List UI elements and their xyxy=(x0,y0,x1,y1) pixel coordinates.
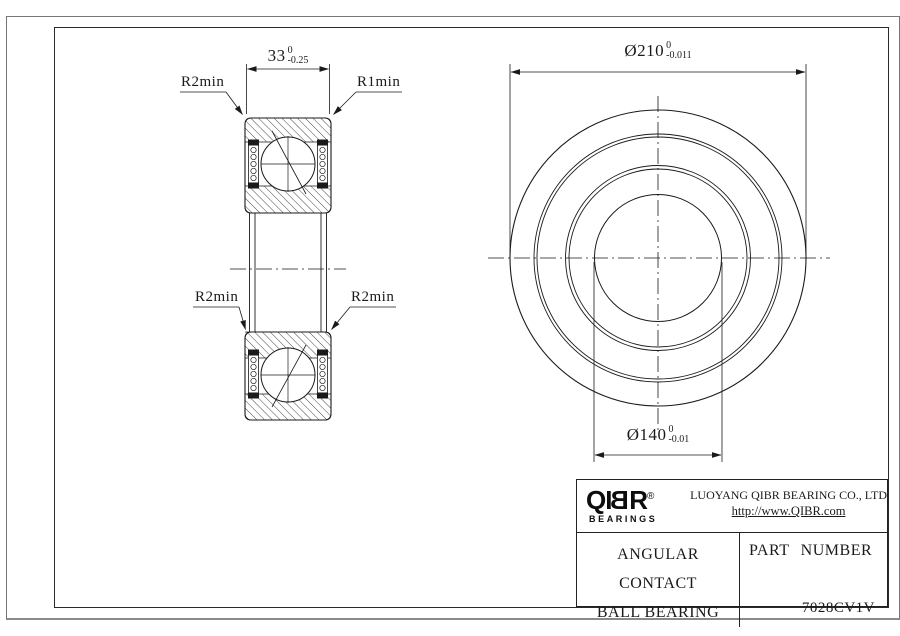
width-dim-tolerance: 0-0.25 xyxy=(288,46,309,66)
part-number-value: 7028CV1V xyxy=(802,600,875,617)
bore-dia-value: Ø140 xyxy=(627,425,667,445)
cage-strip-bottom-right xyxy=(318,350,328,398)
label-r2min-bottom-right: R2min xyxy=(351,289,394,306)
bore-face-lines xyxy=(250,213,327,332)
product-line1: ANGULAR CONTACT xyxy=(577,540,739,598)
logo-wordmark: QIBR® xyxy=(586,484,690,513)
width-dimension-lines xyxy=(247,64,330,114)
product-description: ANGULAR CONTACT BALL BEARING xyxy=(577,533,740,627)
width-dim-value: 33 xyxy=(268,46,286,66)
front-view xyxy=(488,64,830,462)
logo-mirrored-b: B xyxy=(611,487,629,513)
company-info: LUOYANG QIBR BEARING CO., LTD http://www… xyxy=(690,480,887,532)
outer-dia-dimension-text: Ø2100-0.011 xyxy=(558,40,758,61)
section-view xyxy=(180,64,402,420)
section-bottom-half xyxy=(245,332,331,420)
bore-dia-tolerance: 0-0.01 xyxy=(668,425,689,445)
title-block-detail-row: ANGULAR CONTACT BALL BEARING PART NUMBER… xyxy=(577,533,887,627)
product-line2: BALL BEARING xyxy=(577,598,739,627)
company-website-link[interactable]: http://www.QIBR.com xyxy=(690,503,887,519)
outer-dia-value: Ø210 xyxy=(624,41,664,61)
part-number-label: PART NUMBER xyxy=(749,542,872,560)
label-r2min-top-left: R2min xyxy=(181,74,224,91)
part-number-cell: PART NUMBER 7028CV1V xyxy=(740,533,887,627)
label-r1min-top-right: R1min xyxy=(357,74,400,91)
engineering-drawing-sheet: { "drawing": { "section_view": { "width_… xyxy=(0,0,900,636)
section-top-half xyxy=(245,118,331,213)
outer-dia-tolerance: 0-0.011 xyxy=(666,41,691,61)
label-r2min-bottom-left: R2min xyxy=(195,289,238,306)
cage-strip-bottom-left xyxy=(249,350,259,398)
cage-strip-top-right xyxy=(318,140,328,188)
cage-strip-top-left xyxy=(249,140,259,188)
bore-dia-dimension-text: Ø1400-0.01 xyxy=(558,424,758,445)
logo-subtext: BEARINGS xyxy=(589,514,690,524)
company-name: LUOYANG QIBR BEARING CO., LTD xyxy=(690,487,887,503)
registered-trademark-icon: ® xyxy=(647,491,654,502)
title-block: QIBR® BEARINGS LUOYANG QIBR BEARING CO.,… xyxy=(576,479,888,607)
company-logo: QIBR® BEARINGS xyxy=(577,480,690,532)
width-dimension-text: 330-0.25 xyxy=(246,45,330,66)
title-block-header-row: QIBR® BEARINGS LUOYANG QIBR BEARING CO.,… xyxy=(577,480,887,533)
